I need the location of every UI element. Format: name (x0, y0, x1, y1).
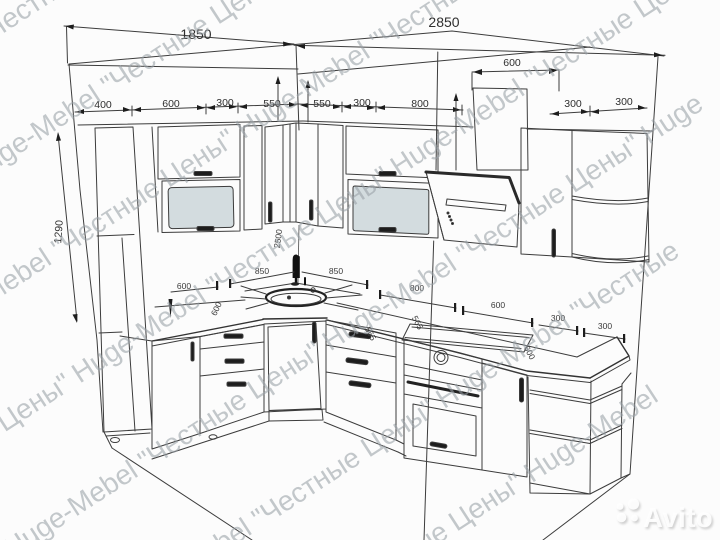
svg-text:850: 850 (329, 266, 343, 276)
svg-text:600: 600 (162, 98, 180, 110)
svg-text:600: 600 (503, 57, 521, 69)
svg-text:600: 600 (491, 300, 505, 310)
svg-text:300: 300 (564, 98, 582, 110)
svg-text:800: 800 (411, 98, 429, 110)
svg-text:300: 300 (353, 97, 371, 109)
svg-text:300: 300 (615, 96, 633, 108)
svg-text:550: 550 (313, 98, 331, 110)
svg-text:Avito: Avito (643, 502, 713, 533)
svg-text:300: 300 (598, 321, 612, 331)
svg-text:300: 300 (216, 97, 234, 109)
